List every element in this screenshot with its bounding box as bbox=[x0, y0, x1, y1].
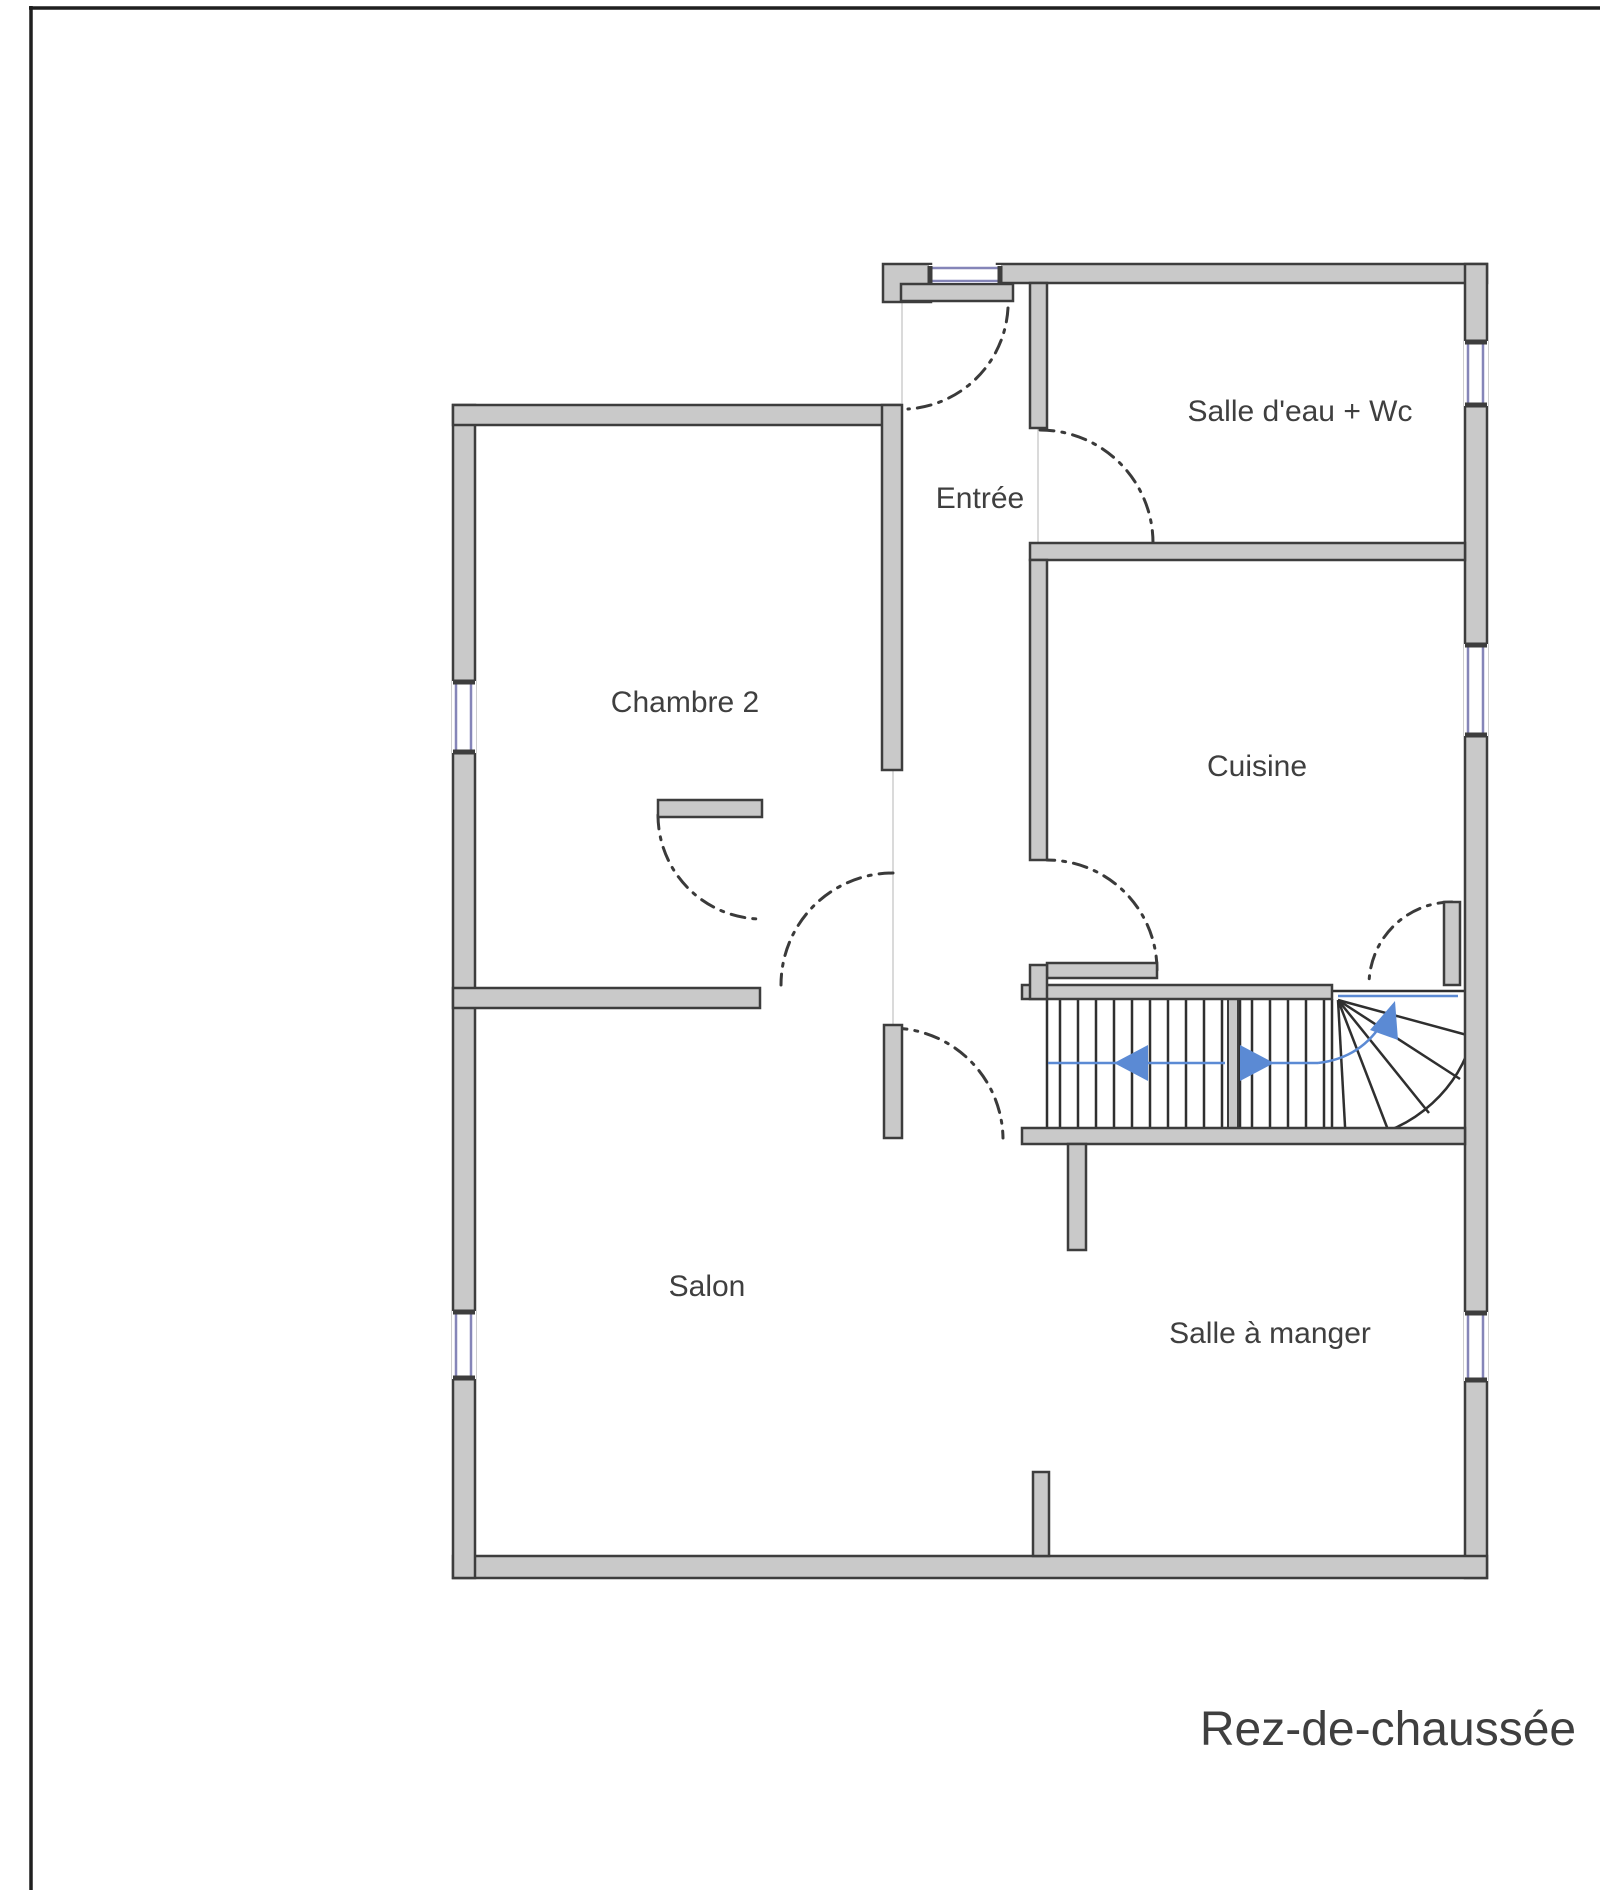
plan-title: Rez-de-chaussée bbox=[1200, 1703, 1576, 1756]
winder-tread bbox=[1338, 1000, 1346, 1144]
wall-chambre-top bbox=[453, 405, 900, 425]
wall-stair-left-stub bbox=[1030, 965, 1047, 999]
winder-tread bbox=[1338, 1000, 1478, 1038]
floor-plan-drawing: Entrée Salle d'eau + Wc Chambre 2 Cuisin… bbox=[0, 0, 1600, 1890]
boundary-guides bbox=[893, 302, 1038, 1025]
floor-plan-page: Entrée Salle d'eau + Wc Chambre 2 Cuisin… bbox=[0, 0, 1600, 1890]
wall-outer-bottom bbox=[453, 1556, 1487, 1578]
wall-stair-top bbox=[1022, 985, 1332, 999]
wall-chambre-right bbox=[882, 405, 902, 770]
wall-stair-bottom bbox=[1022, 1128, 1465, 1144]
wall-salledeau-cuisine bbox=[1030, 543, 1465, 560]
door-leaf-entree bbox=[901, 284, 1013, 301]
staircase bbox=[1047, 991, 1478, 1144]
room-label-salle-a-manger: Salle à manger bbox=[1169, 1317, 1371, 1350]
wall-bottom-stub bbox=[1033, 1472, 1049, 1556]
room-label-cuisine: Cuisine bbox=[1207, 750, 1307, 783]
door-arc-entree bbox=[908, 308, 1008, 409]
winder-tread bbox=[1338, 1000, 1460, 1079]
door-arc-salon bbox=[893, 1028, 1003, 1138]
window-caps bbox=[453, 266, 1487, 1380]
window-backgrounds bbox=[452, 265, 1488, 1381]
stair-divider-wall bbox=[1228, 997, 1238, 1128]
stair-arrows bbox=[1114, 1001, 1398, 1081]
door-arc-escalier bbox=[1369, 902, 1452, 985]
door-arc-couloir bbox=[781, 873, 893, 985]
room-label-entree: Entrée bbox=[936, 482, 1024, 515]
room-label-salle-deau-wc: Salle d'eau + Wc bbox=[1187, 395, 1412, 428]
door-arc-salle-deau bbox=[1040, 430, 1153, 543]
page-frame bbox=[29, 6, 1600, 1890]
wall-entree-salledeau bbox=[1030, 283, 1047, 428]
door-leaf-cuisine bbox=[1047, 963, 1157, 978]
door-leaf-escalier bbox=[1444, 902, 1460, 985]
wall-below-stairs bbox=[1068, 1144, 1086, 1250]
door-arc-cuisine bbox=[1047, 860, 1157, 970]
wall-chambre-salon-divider bbox=[453, 988, 760, 1008]
room-label-chambre-2: Chambre 2 bbox=[611, 686, 759, 719]
door-leaf-chambre-2 bbox=[658, 800, 762, 817]
window-frames bbox=[456, 268, 1483, 1379]
windows bbox=[452, 265, 1488, 1381]
door-leaf-salon bbox=[884, 1025, 902, 1138]
wall-entree-cuisine bbox=[1030, 560, 1047, 860]
wall-outer-top bbox=[997, 264, 1487, 283]
room-label-salon: Salon bbox=[669, 1270, 746, 1303]
door-arc-chambre-2 bbox=[658, 815, 762, 919]
room-labels: Entrée Salle d'eau + Wc Chambre 2 Cuisin… bbox=[611, 395, 1576, 1756]
walls bbox=[453, 264, 1487, 1578]
